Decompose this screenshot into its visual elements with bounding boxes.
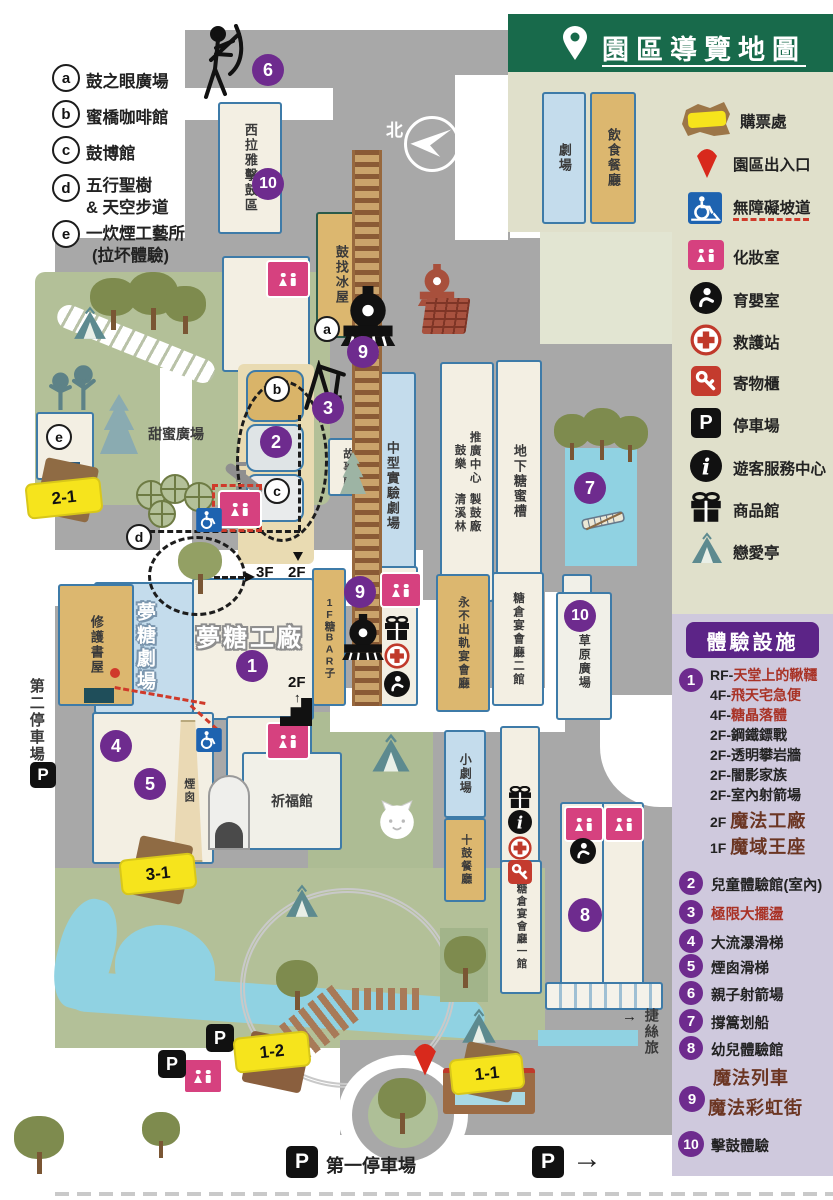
route-3f-arrow <box>245 572 255 582</box>
legend-item-label: 園區出入口 <box>733 153 811 175</box>
panel-item-label: 大流瀑滑梯 <box>711 932 784 953</box>
building-banquet-never: 永不出軌宴會廳 <box>436 574 490 712</box>
legend-item-label: 救護站 <box>733 331 780 353</box>
building-label: 小劇場 <box>459 753 472 795</box>
tree-man-statue-icon <box>48 358 100 410</box>
experience-panel-title: 體驗設施 <box>707 626 799 655</box>
parking-exit-arrow: → <box>572 1142 602 1176</box>
tent-icon <box>72 306 108 340</box>
legend-theater-label: 劇場 <box>557 143 571 173</box>
wheelchair-icon <box>196 508 222 532</box>
tree-icon <box>276 960 318 1010</box>
parking-icon: P <box>286 1146 318 1178</box>
building-banquet-hall-2: 糖倉宴會廳二館 <box>492 572 544 706</box>
parking-icon: P <box>532 1146 564 1178</box>
restroom-icon <box>564 806 604 842</box>
map-badge-10: 10 <box>252 168 284 200</box>
legend-label-a: 鼓之眼廣場 <box>86 68 169 92</box>
tent-icon <box>460 1008 498 1044</box>
route-3f-line <box>214 576 244 579</box>
restroom-icon <box>266 722 310 760</box>
legend-letter-b: b <box>52 100 80 128</box>
info-icon: i <box>690 450 722 482</box>
route-start-dot <box>110 668 120 678</box>
legend-item-label: 育嬰室 <box>733 289 780 311</box>
water-band-southeast <box>538 1030 638 1046</box>
restroom-icon <box>183 1058 223 1094</box>
floor-label-2f-top: 2F <box>288 564 306 581</box>
building-label: 修護書屋 <box>89 615 103 675</box>
building-label: 糖倉宴會廳一館 <box>515 883 526 971</box>
parking1-label: 第一停車場 <box>326 1152 416 1178</box>
building-label: 中型實驗劇場 <box>385 441 399 531</box>
chimney-label: 煙囪 <box>182 778 194 804</box>
panel-badge-8: 8 <box>679 1036 703 1060</box>
map-letter-a: a <box>314 316 340 342</box>
panel-badge-4: 4 <box>679 929 703 953</box>
parking-icon: P <box>206 1024 234 1052</box>
legend-item-label: 無障礙坡道 <box>733 196 811 218</box>
nursing-icon <box>690 282 722 314</box>
boat-canal-pond <box>565 448 637 566</box>
entrance-pin-icon <box>696 146 718 178</box>
map-letter-b: b <box>264 376 290 402</box>
map-letter-e: e <box>46 424 72 450</box>
tree-icon <box>14 1116 64 1174</box>
legend-label-d1: 五行聖樹 <box>86 172 152 196</box>
ticket-sign-1-1: 1-1 <box>448 1052 525 1096</box>
legend-letter-a: a <box>52 64 80 92</box>
legend-item-label: 購票處 <box>740 110 787 132</box>
panel-item-label: 極限大擺盪 <box>711 903 784 924</box>
legend-item-label: 商品館 <box>733 499 780 521</box>
building-label: 鼓樂 <box>453 431 465 485</box>
info-icon: i <box>508 810 532 834</box>
water-wheel-icon <box>148 500 176 528</box>
svg-text:i: i <box>517 812 523 832</box>
map-letter-c: c <box>264 478 290 504</box>
panel-badge-9: 9 <box>679 1086 705 1112</box>
letter-legend: a 鼓之眼廣場 b 蜜橋咖啡館 c 鼓博館 d 五行聖樹 & 天空步道 e 一炊… <box>52 60 192 260</box>
building-label: 清溪林 <box>453 493 465 534</box>
legend-restaurant-building: 飲食餐廳 <box>590 92 636 224</box>
building-drum-restaurant: 十鼓餐廳 <box>444 818 486 902</box>
parking2-label-group: 第二停車場 <box>28 678 44 768</box>
panel-badge-7: 7 <box>679 1009 703 1033</box>
panel-item-label: 親子射箭場 <box>711 984 784 1005</box>
tunnel-hole <box>215 822 243 848</box>
building-label: 草原廣場 <box>578 634 591 690</box>
map-badge-1: 1 <box>236 650 268 682</box>
brick-planter-icon <box>421 298 470 334</box>
legend-item-label: 戀愛亭 <box>733 541 780 563</box>
legend-item-label: 化妝室 <box>733 246 780 268</box>
floor-arrow-up: ↑ <box>294 690 301 705</box>
panel-item-label: 撐篙划船 <box>711 1012 769 1033</box>
restroom-icon <box>266 260 310 298</box>
legend-letter-d: d <box>52 174 80 202</box>
restroom-icon <box>380 572 422 608</box>
raft-icon <box>580 508 626 532</box>
panel-item9-line1: 魔法列車 <box>713 1064 789 1090</box>
route-vertical <box>298 415 301 531</box>
north-compass-icon <box>404 116 460 172</box>
panel-item1-lines: RF-天堂上的鞦韆 4F-飛天宅急便 4F-糖晶落體 2F-鋼鐵鏢戰 2F-透明… <box>710 665 832 861</box>
gift-icon <box>690 492 722 522</box>
building-label: 糖倉宴會廳二館 <box>512 592 524 687</box>
barrier-free-dash-sample <box>733 218 809 221</box>
parking-icon: P <box>158 1050 186 1078</box>
legend-label-e2: (拉坏體驗) <box>92 242 169 266</box>
map-title: 園區導覽地圖 <box>602 28 806 67</box>
map-title-bar: 園區導覽地圖 <box>508 14 833 72</box>
map-badge-9: 9 <box>347 336 379 368</box>
tent-icon <box>370 734 412 772</box>
map-badge-10b: 10 <box>564 600 596 632</box>
parking-icon: P <box>691 408 721 438</box>
building-fence <box>545 982 663 1010</box>
entrance-pin-icon <box>413 1040 437 1076</box>
floor-label-2f-low: 2F <box>288 674 306 691</box>
first-aid-icon <box>508 836 532 860</box>
restroom-icon <box>604 806 644 842</box>
restroom-icon <box>688 240 724 270</box>
dream-factory-title: 夢糖工廠 <box>196 618 316 653</box>
building-sugar-bar: 1F糖BAR子 <box>312 568 346 706</box>
tent-icon <box>284 884 320 918</box>
map-badge-7: 7 <box>574 472 606 504</box>
bottom-perforation <box>55 1192 833 1196</box>
tree-icon <box>612 416 648 462</box>
legend-label-c: 鼓博館 <box>86 140 136 164</box>
building-label: 夢糖劇場 <box>134 602 154 694</box>
panel-item-label: 兒童體驗館(室內) <box>711 874 822 895</box>
gift-icon <box>508 786 532 808</box>
nursing-icon <box>384 671 410 697</box>
building-label: 十鼓餐廳 <box>459 834 471 886</box>
tree-icon <box>164 286 206 334</box>
hotel-arrow: → <box>622 1008 637 1025</box>
map-badge-3: 3 <box>312 392 344 424</box>
panel-item10-label: 擊鼓體驗 <box>711 1135 769 1156</box>
building-label: 1F糖BAR子 <box>323 597 334 678</box>
panel-badge-3: 3 <box>679 900 703 924</box>
repair-bookhouse-door <box>84 688 114 703</box>
gift-icon <box>384 616 410 640</box>
map-badge-5: 5 <box>134 768 166 800</box>
legend-label-b: 蜜橋咖啡館 <box>86 104 169 128</box>
building-label: 祈福館 <box>271 791 313 811</box>
panel-badge-1: 1 <box>679 668 703 692</box>
legend-label-d2: & 天空步道 <box>86 194 169 218</box>
locker-key-icon <box>691 366 721 396</box>
map-badge-4: 4 <box>100 730 132 762</box>
floor-label-3f: 3F <box>256 564 274 581</box>
map-badge-9b: 9 <box>344 576 376 608</box>
map-pin-icon <box>562 25 588 61</box>
building-label: 西拉雅擊鼓區 <box>243 123 257 213</box>
legend-item-label: 停車場 <box>733 414 780 436</box>
nursing-icon <box>570 838 596 864</box>
ticket-icon <box>680 100 732 138</box>
building-label: 推廣中心 <box>469 431 481 485</box>
map-badge-2: 2 <box>260 426 292 458</box>
map-letter-d: d <box>126 524 152 550</box>
panel-badge-2: 2 <box>679 871 703 895</box>
building-label: 永不出軌宴會廳 <box>457 596 469 691</box>
experience-panel-header: 體驗設施 <box>686 622 819 658</box>
panel-badge-6: 6 <box>679 981 703 1005</box>
panel-badge-5: 5 <box>679 954 703 978</box>
parking2-label: 第二停車場 <box>28 678 44 763</box>
road-compass-column <box>455 75 508 240</box>
tent-icon <box>690 532 724 564</box>
cat-icon <box>378 798 416 840</box>
wheelchair-icon <box>688 192 722 224</box>
north-label: 北 <box>386 116 403 141</box>
panel-badge-10: 10 <box>678 1131 704 1157</box>
building-blessing-hall: 祈福館 <box>242 752 342 850</box>
legend-theater-building: 劇場 <box>542 92 586 224</box>
tree-icon <box>444 936 486 988</box>
building-promo-center: 鼓樂 推廣中心 清溪林 製鼓廠 <box>440 362 494 602</box>
parking-icon: P <box>30 762 56 788</box>
legend-restaurant-label: 飲食餐廳 <box>606 128 620 188</box>
locker-key-icon <box>508 860 532 884</box>
map-badge-8: 8 <box>568 898 602 932</box>
legend-item-label: 遊客服務中心 <box>733 457 826 479</box>
map-badge-6: 6 <box>252 54 284 86</box>
wheelchair-icon <box>196 728 222 752</box>
restroom-icon <box>218 490 262 528</box>
svg-text:i: i <box>702 455 711 481</box>
legend-item-label: 寄物櫃 <box>733 372 780 394</box>
hotel-label: 捷絲旅 <box>644 1008 659 1056</box>
first-aid-icon <box>690 324 722 356</box>
lawn-right <box>540 232 672 344</box>
building-sugar-tank: 地下糖蜜槽 <box>496 360 542 602</box>
panel-item-label: 幼兒體驗館 <box>711 1039 784 1060</box>
legend-label-e1: 一炊煙工藝所 <box>86 220 185 244</box>
building-small-theater: 小劇場 <box>444 730 486 818</box>
route-2f-arrow <box>293 552 303 561</box>
legend-letter-e: e <box>52 220 80 248</box>
park-guide-map: 西拉雅擊鼓區 鼓找冰屋 故事館 中型實驗劇場 鼓樂 推廣中心 清溪林 製鼓廠 地… <box>0 0 833 1200</box>
building-label: 製鼓廠 <box>469 493 481 534</box>
hotel-label-group: 捷絲旅 <box>644 1008 659 1061</box>
archer-statue-icon <box>193 24 245 102</box>
sweet-plaza-label: 甜蜜廣場 <box>148 424 204 444</box>
building-label: 地下糖蜜槽 <box>512 444 526 519</box>
tree-icon <box>378 1078 426 1134</box>
panel-item-label: 煙囪滑梯 <box>711 957 769 978</box>
tree-icon <box>142 1112 180 1158</box>
legend-letter-c: c <box>52 136 80 164</box>
locomotive-icon-mid <box>342 614 384 660</box>
panel-item9-line2: 魔法彩虹街 <box>708 1094 803 1120</box>
first-aid-icon <box>384 643 410 669</box>
